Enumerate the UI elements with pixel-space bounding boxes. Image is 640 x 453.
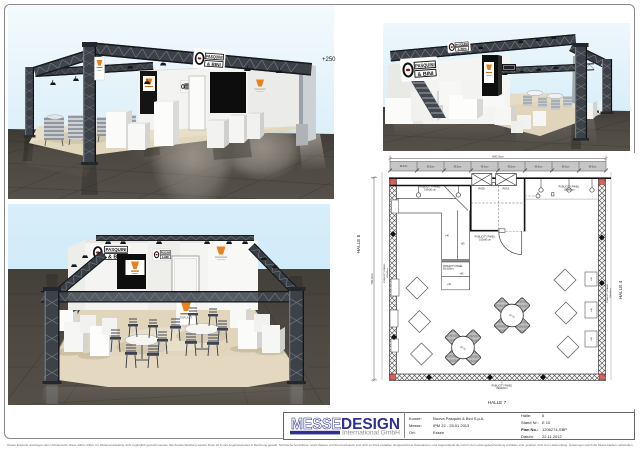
svg-text:80x200cm: 80x200cm [443, 269, 454, 271]
svg-text:MESSE: MESSE [291, 416, 341, 433]
svg-text:TEPLAST: TEPLAST [180, 316, 193, 320]
svg-text:99.2cm: 99.2cm [589, 166, 597, 168]
svg-text:International GmbH: International GmbH [342, 430, 400, 437]
svg-text:99.2cm: 99.2cm [562, 166, 570, 168]
svg-text:99.2cm: 99.2cm [427, 166, 435, 168]
svg-text:PUBLICITY PANEL: PUBLICITY PANEL [606, 283, 609, 303]
svg-text:800.0cm: 800.0cm [492, 155, 504, 159]
svg-text:& BINI: & BINI [162, 255, 169, 259]
svg-text:HALLE 4: HALLE 4 [618, 280, 623, 299]
svg-text:99.2cm: 99.2cm [481, 166, 489, 168]
svg-text:99.2cm: 99.2cm [535, 166, 543, 168]
svg-text:& BINI: & BINI [207, 61, 221, 67]
svg-text:PASQUINI: PASQUINI [106, 247, 128, 253]
svg-text:PUBLICITY PANEL: PUBLICITY PANEL [383, 263, 386, 283]
svg-text:HALLE 8: HALLE 8 [356, 234, 361, 253]
svg-text:100x60cm: 100x60cm [610, 288, 612, 298]
svg-text:100x60cm: 100x60cm [387, 268, 389, 278]
svg-text:HALLE 7: HALLE 7 [488, 400, 507, 405]
svg-text:PASQUINI: PASQUINI [161, 251, 170, 255]
svg-text:100x80cm: 100x80cm [563, 188, 574, 191]
svg-text:RACK: RACK [503, 188, 510, 191]
svg-text:150x80 cm: 150x80 cm [424, 188, 436, 191]
svg-text:99.2cm: 99.2cm [508, 166, 516, 168]
svg-text:80x200cm: 80x200cm [496, 387, 507, 390]
svg-text:99.2cm: 99.2cm [454, 166, 462, 168]
svg-text:& BINI: & BINI [417, 71, 434, 78]
svg-text:100x80 cm: 100x80 cm [479, 238, 491, 241]
svg-text:RACK: RACK [478, 188, 485, 191]
svg-text:& BINI: & BINI [457, 47, 466, 52]
svg-text:PUBLICITY PANEL: PUBLICITY PANEL [443, 265, 464, 268]
svg-text:700,0cm: 700,0cm [370, 273, 374, 285]
svg-text:99.2cm: 99.2cm [400, 166, 408, 168]
